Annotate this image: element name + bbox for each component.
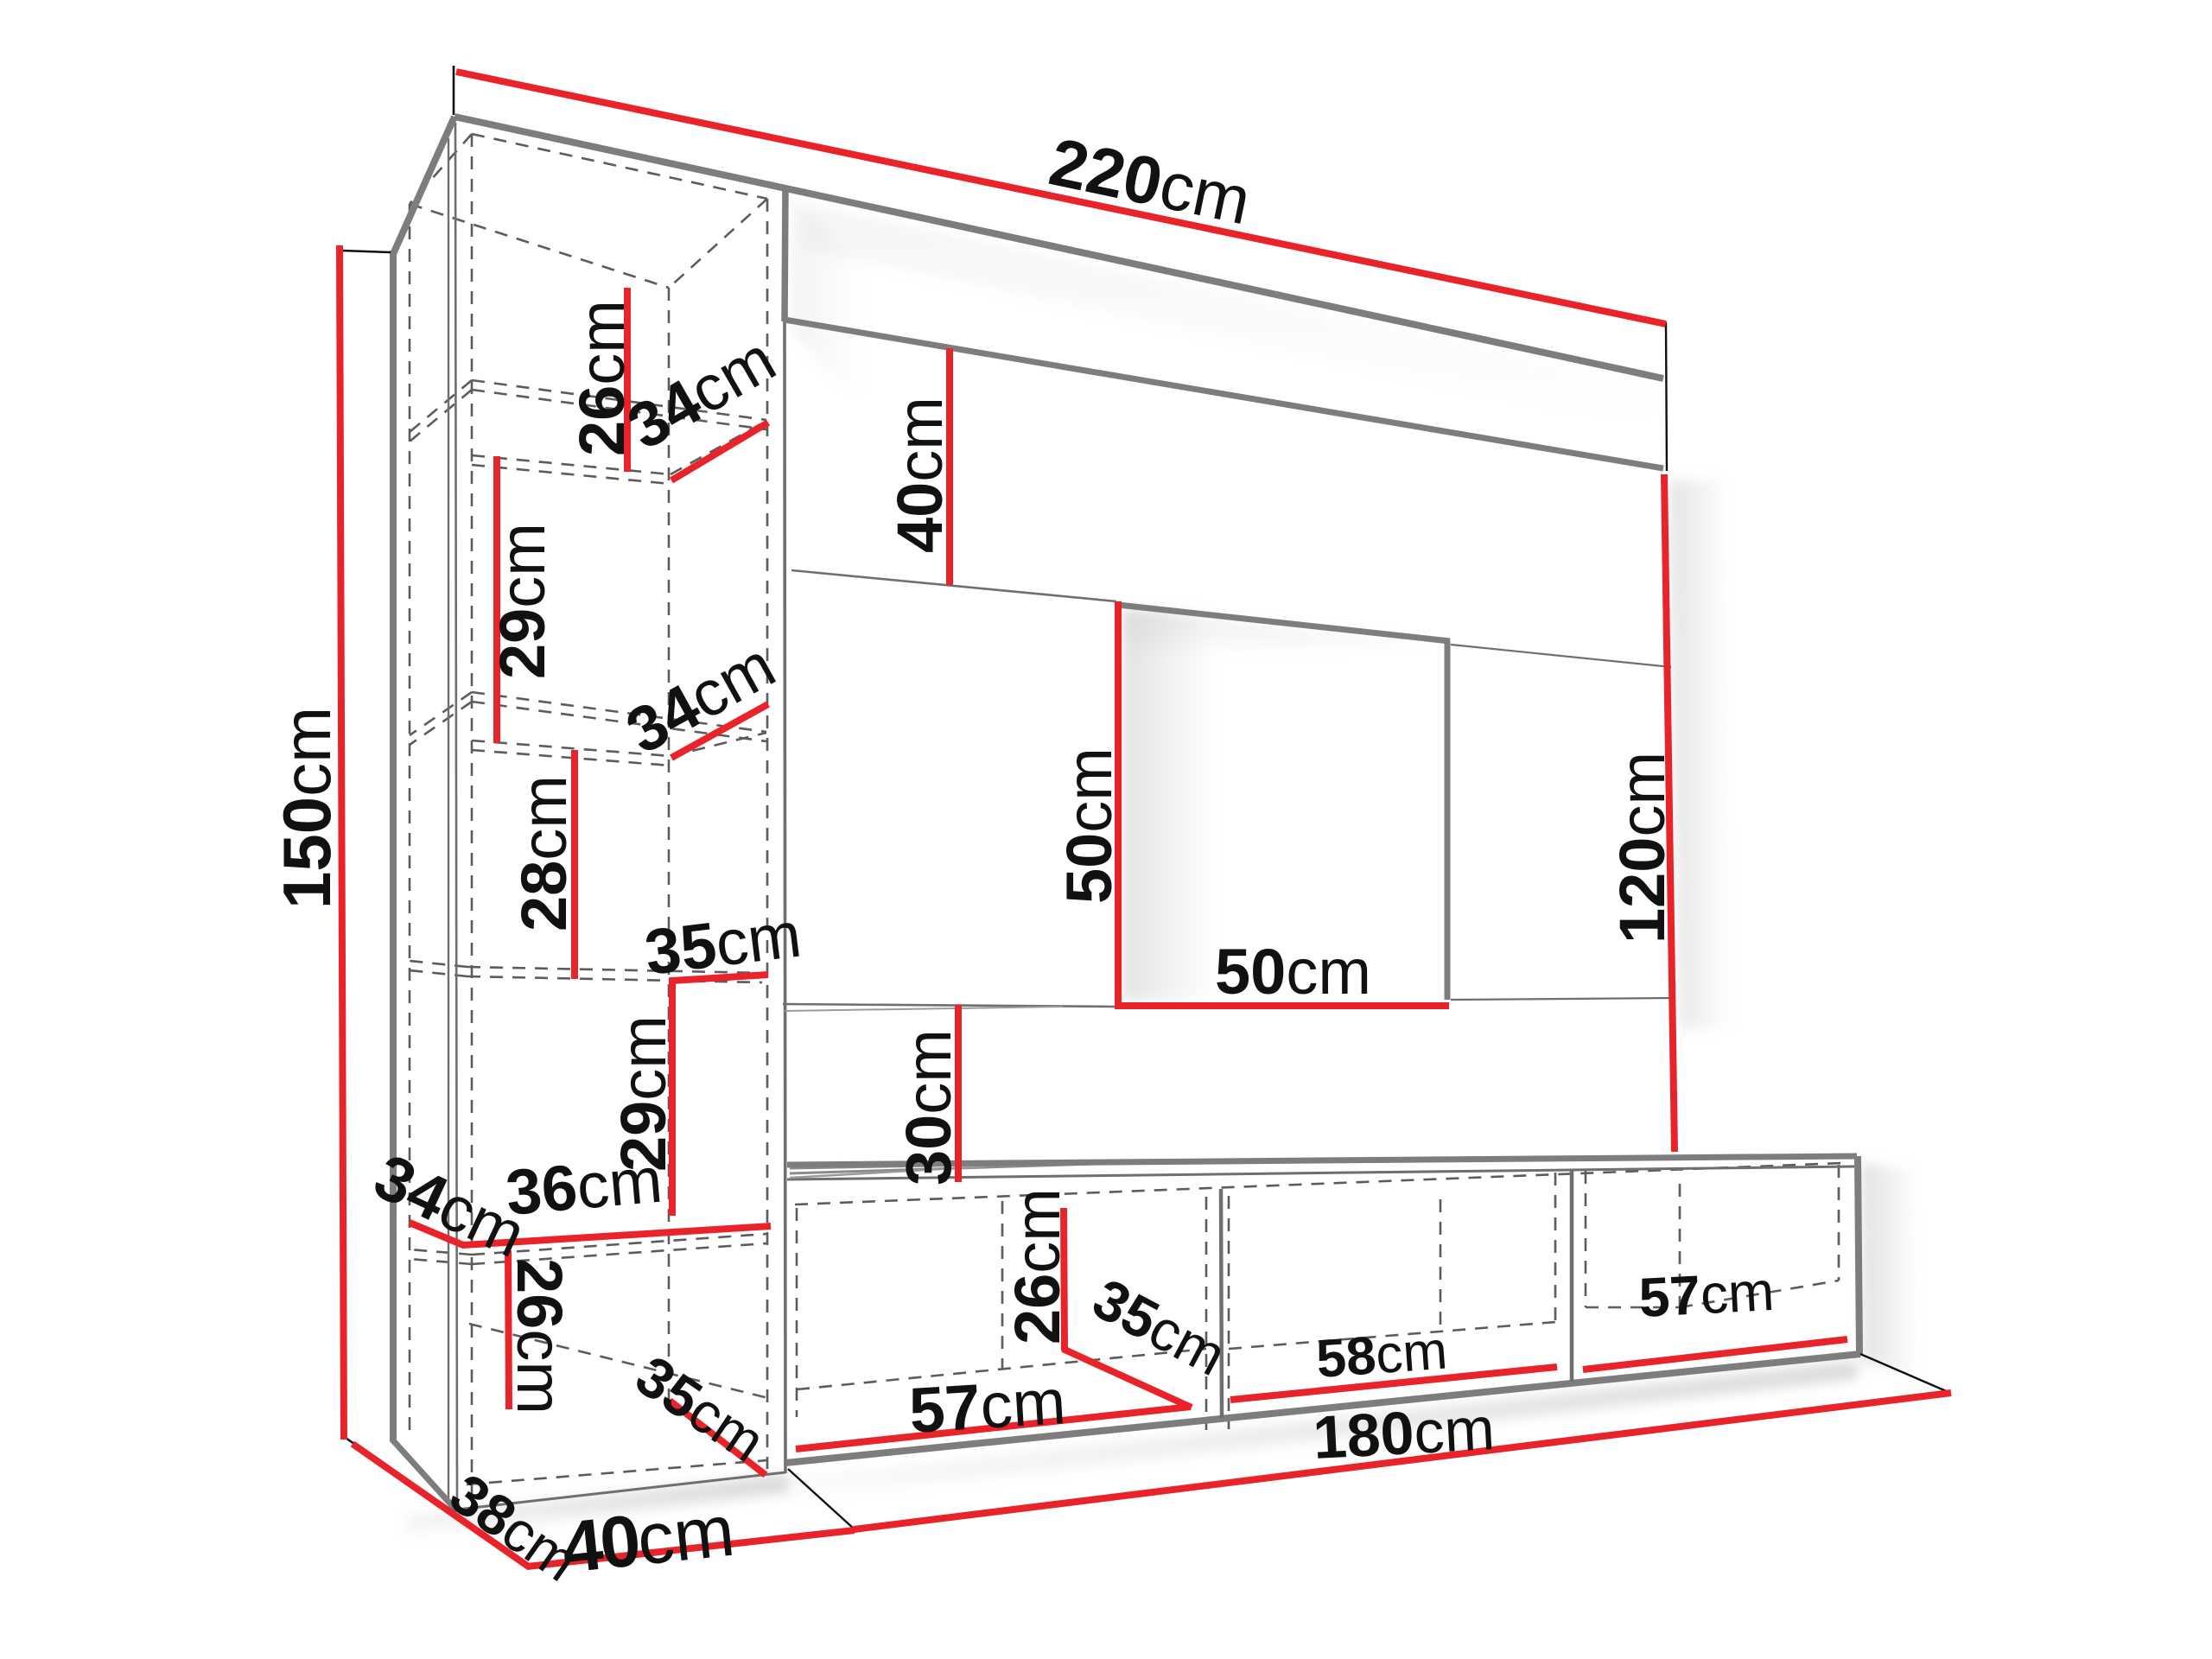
- svg-text:26cm: 26cm: [1001, 1188, 1073, 1344]
- svg-text:120cm: 120cm: [1606, 752, 1678, 944]
- svg-text:40cm: 40cm: [884, 397, 956, 553]
- svg-text:150cm: 150cm: [269, 707, 345, 909]
- svg-text:40cm: 40cm: [558, 1490, 738, 1588]
- svg-text:34cm: 34cm: [616, 322, 787, 462]
- svg-text:35cm: 35cm: [625, 1343, 776, 1474]
- svg-text:28cm: 28cm: [508, 775, 580, 931]
- svg-text:220cm: 220cm: [1044, 124, 1257, 239]
- svg-text:34cm: 34cm: [615, 629, 787, 767]
- svg-text:30cm: 30cm: [893, 1029, 964, 1185]
- svg-text:57cm: 57cm: [907, 1365, 1068, 1446]
- svg-text:58cm: 58cm: [1314, 1321, 1449, 1389]
- svg-text:29cm: 29cm: [486, 523, 558, 679]
- svg-text:50cm: 50cm: [1215, 936, 1371, 1007]
- svg-text:26cm: 26cm: [566, 300, 638, 456]
- svg-text:35cm: 35cm: [641, 898, 805, 988]
- svg-text:180cm: 180cm: [1312, 1395, 1497, 1471]
- svg-text:26cm: 26cm: [504, 1258, 575, 1414]
- svg-text:57cm: 57cm: [1637, 1260, 1776, 1329]
- svg-text:50cm: 50cm: [1053, 747, 1125, 904]
